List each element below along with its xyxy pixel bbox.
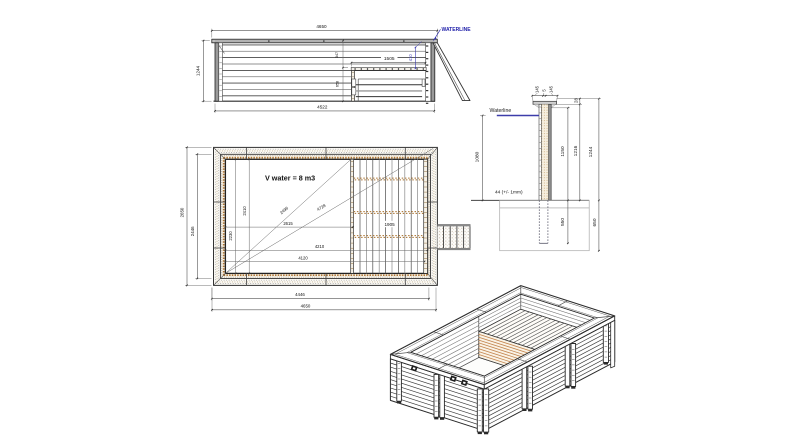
svg-text:4446: 4446 <box>295 292 305 297</box>
svg-text:145: 145 <box>534 85 539 93</box>
svg-text:1244: 1244 <box>195 65 200 76</box>
svg-text:4120: 4120 <box>298 256 308 261</box>
svg-text:44 (+/- 1mm): 44 (+/- 1mm) <box>495 189 523 195</box>
svg-text:4650: 4650 <box>301 303 311 308</box>
svg-text:2446: 2446 <box>190 226 195 236</box>
svg-text:1080: 1080 <box>474 151 480 162</box>
svg-text:4210: 4210 <box>315 244 325 249</box>
svg-text:V water = 8 m3: V water = 8 m3 <box>265 174 315 183</box>
svg-text:145: 145 <box>548 85 553 93</box>
svg-text:Waterline: Waterline <box>490 108 512 114</box>
svg-text:1905: 1905 <box>384 222 395 227</box>
svg-text:28: 28 <box>574 98 579 103</box>
svg-text:2410: 2410 <box>242 206 247 216</box>
svg-text:2230: 2230 <box>228 231 233 241</box>
svg-text:347: 347 <box>335 52 339 58</box>
svg-text:658: 658 <box>336 81 340 87</box>
svg-text:2615: 2615 <box>283 221 293 226</box>
svg-text:1244: 1244 <box>588 146 594 157</box>
svg-text:1150: 1150 <box>560 146 566 157</box>
svg-text:550: 550 <box>560 218 566 226</box>
svg-text:650: 650 <box>592 218 598 226</box>
svg-text:1216: 1216 <box>573 145 579 156</box>
svg-text:4522: 4522 <box>317 104 328 109</box>
svg-text:4650: 4650 <box>316 24 327 29</box>
svg-text:1505: 1505 <box>384 56 395 62</box>
svg-text:2650: 2650 <box>179 207 184 217</box>
svg-text:410: 410 <box>408 54 413 62</box>
svg-text:WATERLINE: WATERLINE <box>442 27 472 33</box>
